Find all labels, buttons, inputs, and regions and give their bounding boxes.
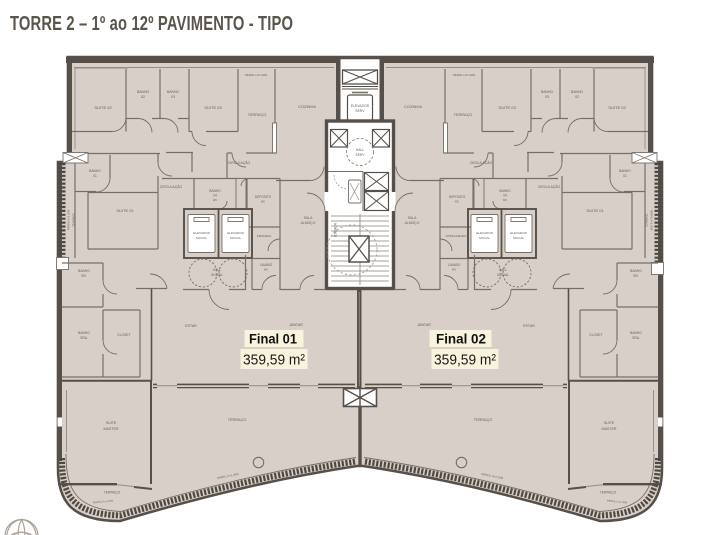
svg-text:ANTECAMARA: ANTECAMARA xyxy=(446,234,467,238)
svg-text:SUITE 02: SUITE 02 xyxy=(608,105,626,110)
svg-text:PERFIL H=1.20M: PERFIL H=1.20M xyxy=(607,499,628,505)
svg-text:SOCIAL: SOCIAL xyxy=(196,236,208,240)
svg-text:CLOSET: CLOSET xyxy=(589,333,603,337)
svg-text:LAVABO: LAVABO xyxy=(260,263,273,267)
svg-text:01: 01 xyxy=(93,174,97,178)
svg-text:HALL: HALL xyxy=(213,268,221,272)
svg-text:WC: WC xyxy=(503,198,507,202)
svg-text:SOCIAL: SOCIAL xyxy=(479,236,491,240)
svg-text:TERRAÇO: TERRAÇO xyxy=(454,113,473,117)
svg-text:PERFIL H=1.20M: PERFIL H=1.20M xyxy=(481,472,504,480)
svg-text:Final 02: Final 02 xyxy=(436,331,486,347)
svg-text:SUITE 01: SUITE 01 xyxy=(116,208,134,213)
svg-text:SUITE 01: SUITE 01 xyxy=(586,208,604,213)
svg-text:TERRAÇO: TERRAÇO xyxy=(104,491,121,495)
svg-text:ALMOÇO: ALMOÇO xyxy=(405,221,420,225)
svg-text:BANHO: BANHO xyxy=(167,90,179,94)
svg-text:BANHO: BANHO xyxy=(209,189,221,193)
svg-text:SOCIAL: SOCIAL xyxy=(497,273,509,277)
svg-text:359,59 m²: 359,59 m² xyxy=(243,352,305,369)
svg-text:TERRAÇO: TERRAÇO xyxy=(228,418,247,422)
svg-text:PERFIL H=1.20M: PERFIL H=1.20M xyxy=(650,210,654,230)
svg-text:HALL: HALL xyxy=(499,268,507,272)
svg-text:CIRCULAÇÃO: CIRCULAÇÃO xyxy=(470,160,493,165)
svg-text:COZINHA: COZINHA xyxy=(298,104,316,109)
svg-text:TERRAÇO: TERRAÇO xyxy=(474,418,493,422)
svg-text:PRATARIA: PRATARIA xyxy=(257,234,272,238)
svg-text:SRA.: SRA. xyxy=(632,336,640,340)
svg-text:02: 02 xyxy=(141,95,145,99)
svg-text:TERRAÇO: TERRAÇO xyxy=(72,212,76,226)
svg-text:PERFIL H=1.20M: PERFIL H=1.20M xyxy=(217,472,240,480)
svg-text:ELEVADOR: ELEVADOR xyxy=(510,231,527,235)
svg-text:ESTAR: ESTAR xyxy=(185,324,197,328)
svg-text:PERFIL H=1.20M: PERFIL H=1.20M xyxy=(245,73,268,77)
svg-text:SALA: SALA xyxy=(304,216,313,220)
svg-text:04: 04 xyxy=(503,194,507,198)
svg-text:CLOSET: CLOSET xyxy=(117,333,131,337)
svg-text:JANTAR: JANTAR xyxy=(417,323,431,327)
svg-text:ELEVADOR: ELEVADOR xyxy=(193,231,210,235)
svg-text:01: 01 xyxy=(623,174,627,178)
svg-text:SOCIAL: SOCIAL xyxy=(230,236,242,240)
svg-text:ELEVADOR: ELEVADOR xyxy=(476,231,493,235)
svg-text:BANHO: BANHO xyxy=(137,90,149,94)
svg-text:Final 01: Final 01 xyxy=(249,331,297,347)
svg-text:WC: WC xyxy=(455,200,459,204)
svg-text:359,59 m²: 359,59 m² xyxy=(434,352,496,369)
svg-text:BANHO: BANHO xyxy=(571,90,583,94)
svg-text:BANHO: BANHO xyxy=(630,269,642,273)
svg-text:PERFIL H=1.20M: PERFIL H=1.20M xyxy=(67,210,71,230)
svg-text:BANHO: BANHO xyxy=(78,331,90,335)
svg-text:CIRCULAÇÃO: CIRCULAÇÃO xyxy=(228,160,251,165)
svg-text:CIRCULAÇÃO: CIRCULAÇÃO xyxy=(538,184,561,189)
svg-text:BANHO: BANHO xyxy=(541,90,553,94)
svg-text:MASTER: MASTER xyxy=(104,427,119,431)
svg-text:BANHO: BANHO xyxy=(78,269,90,273)
svg-text:WC: WC xyxy=(264,268,268,272)
svg-text:03: 03 xyxy=(545,95,549,99)
svg-text:DEPOSITO: DEPOSITO xyxy=(255,195,272,199)
svg-text:BANHO: BANHO xyxy=(89,169,101,173)
svg-text:LAVABO: LAVABO xyxy=(448,263,461,267)
svg-text:SUITE 03: SUITE 03 xyxy=(204,105,222,110)
svg-text:SUITE 02: SUITE 02 xyxy=(94,105,112,110)
svg-text:SOCIAL: SOCIAL xyxy=(211,273,223,277)
svg-text:WC: WC xyxy=(261,200,265,204)
svg-text:TERRAÇO: TERRAÇO xyxy=(248,113,267,117)
svg-text:BANHO: BANHO xyxy=(499,189,511,193)
svg-text:SR.: SR. xyxy=(81,274,87,278)
svg-text:CIRCULAÇÃO: CIRCULAÇÃO xyxy=(160,184,183,189)
svg-text:02: 02 xyxy=(575,95,579,99)
svg-text:WC: WC xyxy=(452,268,456,272)
svg-text:PERFIL H=1.20M: PERFIL H=1.20M xyxy=(453,73,476,77)
svg-text:SUITE: SUITE xyxy=(604,421,615,425)
svg-text:DEPOSITO: DEPOSITO xyxy=(449,195,466,199)
svg-text:TERRAÇO: TERRAÇO xyxy=(600,491,617,495)
svg-text:SRA.: SRA. xyxy=(80,336,88,340)
svg-text:SUITE 03: SUITE 03 xyxy=(498,105,516,110)
svg-text:04: 04 xyxy=(213,194,217,198)
svg-text:SOCIAL: SOCIAL xyxy=(513,236,525,240)
svg-text:SALA: SALA xyxy=(408,216,417,220)
svg-text:ALMOÇO: ALMOÇO xyxy=(301,221,316,225)
svg-text:ELEVADOR: ELEVADOR xyxy=(227,231,244,235)
svg-text:JANTAR: JANTAR xyxy=(289,323,303,327)
svg-text:TERRAÇO: TERRAÇO xyxy=(645,213,649,227)
svg-text:SR.: SR. xyxy=(633,274,639,278)
svg-text:BANHO: BANHO xyxy=(630,331,642,335)
svg-text:MASTER: MASTER xyxy=(602,427,617,431)
svg-text:COZINHA: COZINHA xyxy=(404,104,422,109)
svg-text:ESTAR: ESTAR xyxy=(523,324,535,328)
svg-text:PERFIL H=1.20M: PERFIL H=1.20M xyxy=(93,499,114,505)
svg-text:03: 03 xyxy=(171,95,175,99)
svg-text:BANHO: BANHO xyxy=(619,169,631,173)
svg-text:SUITE: SUITE xyxy=(106,421,117,425)
svg-text:WC: WC xyxy=(213,198,217,202)
